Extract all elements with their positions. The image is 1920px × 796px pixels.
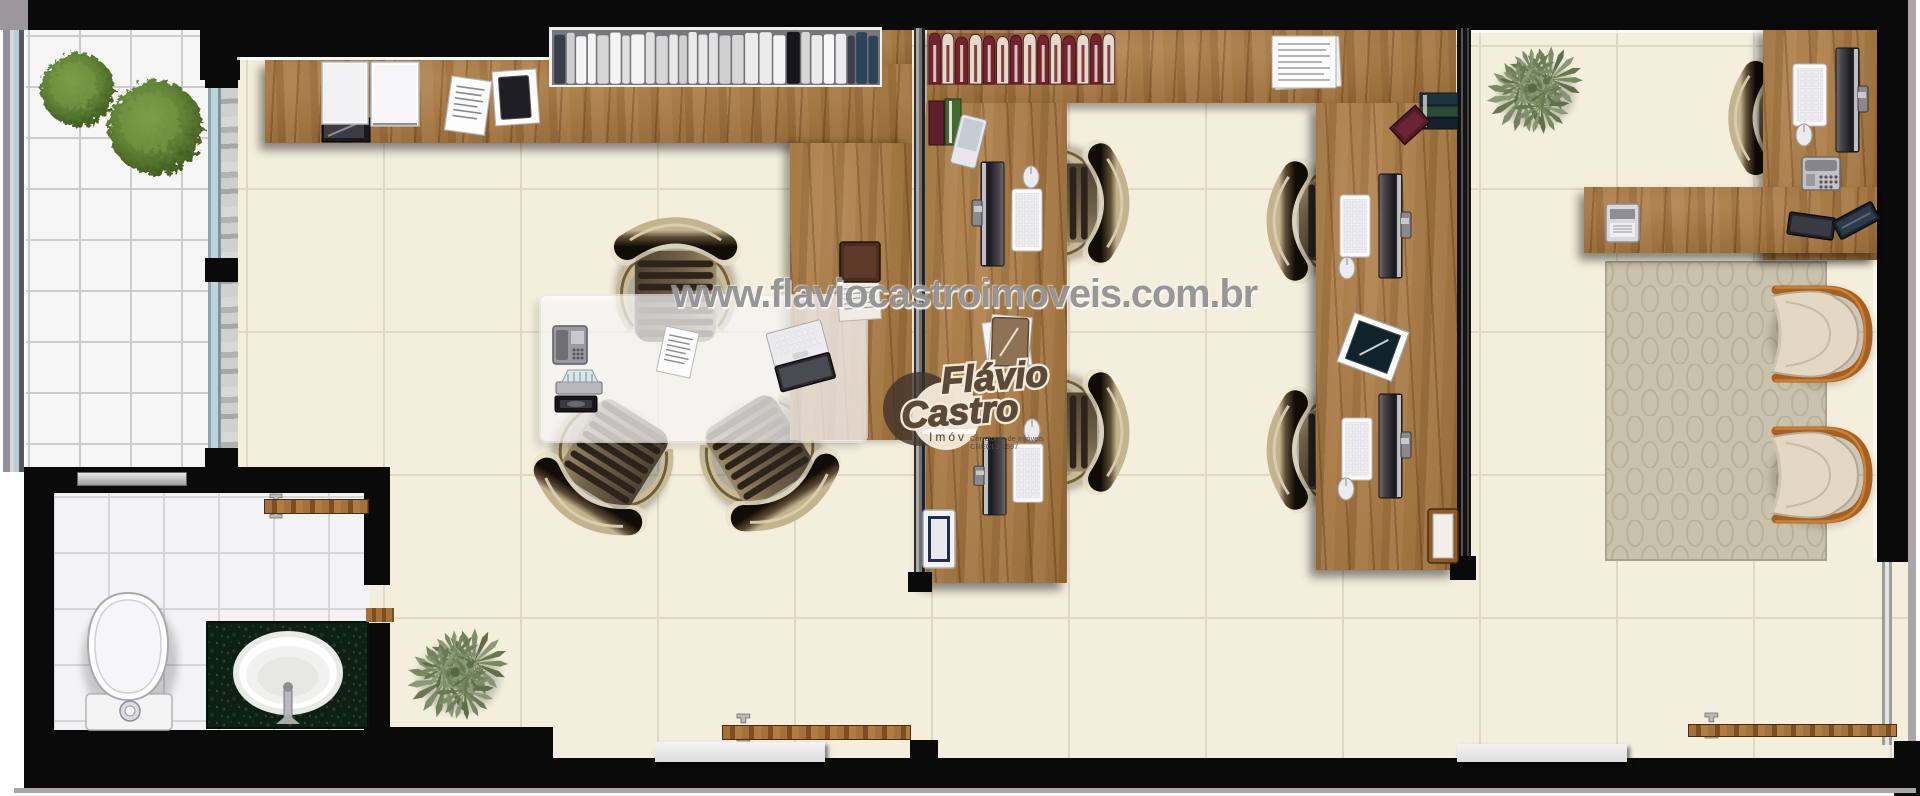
svg-text:Castro: Castro [900, 387, 1020, 436]
svg-text:CRECI J-1597: CRECI J-1597 [970, 442, 1018, 451]
svg-text:Imóv: Imóv [929, 430, 967, 444]
